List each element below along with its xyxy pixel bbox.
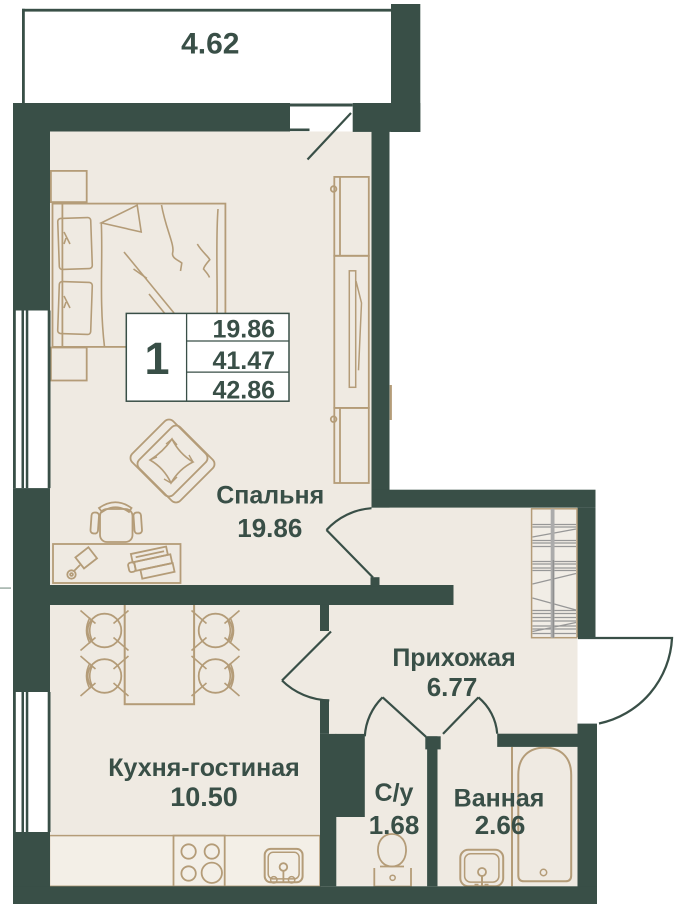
svg-text:19.86: 19.86 [212, 316, 275, 344]
svg-text:19.86: 19.86 [237, 513, 302, 543]
svg-text:1: 1 [144, 333, 169, 384]
svg-text:Кухня-гостиная: Кухня-гостиная [108, 754, 300, 782]
svg-text:42.86: 42.86 [212, 377, 275, 405]
svg-text:1.68: 1.68 [369, 810, 420, 840]
svg-text:4.62: 4.62 [181, 28, 239, 61]
svg-text:С/у: С/у [375, 779, 414, 807]
svg-text:Прихожая: Прихожая [392, 644, 515, 672]
svg-text:41.47: 41.47 [212, 347, 275, 375]
svg-text:6.77: 6.77 [427, 672, 478, 702]
svg-text:Ванная: Ванная [454, 785, 545, 813]
svg-text:2.66: 2.66 [475, 810, 526, 840]
svg-text:Спальня: Спальня [216, 482, 324, 510]
svg-text:10.50: 10.50 [170, 782, 238, 812]
